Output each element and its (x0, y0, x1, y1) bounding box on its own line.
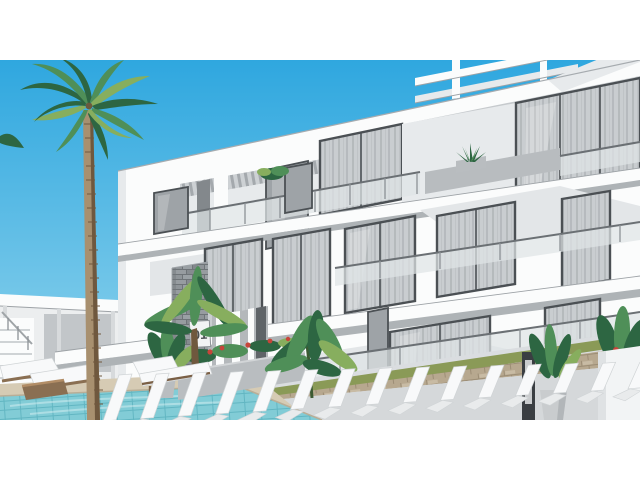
render-image: 01 (0, 0, 640, 480)
architectural-render-canvas: 01 (0, 0, 640, 480)
narrow-window (285, 163, 312, 213)
